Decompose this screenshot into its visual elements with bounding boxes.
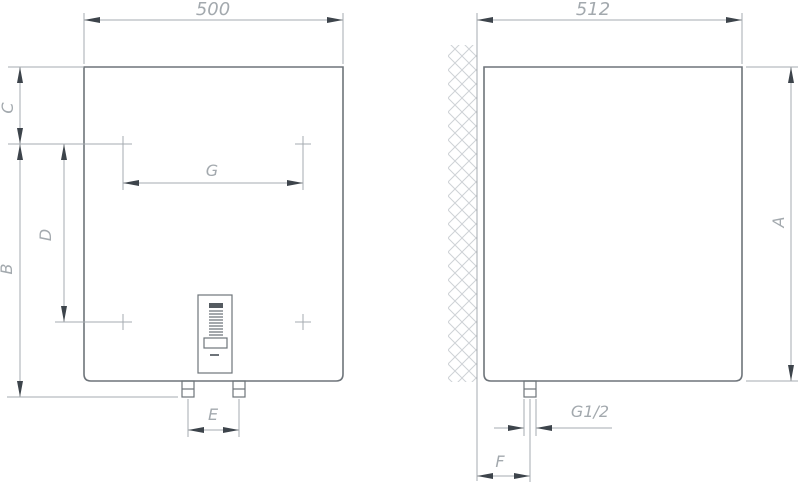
arrowhead (477, 17, 493, 23)
arrowhead (287, 180, 303, 186)
arrowhead (61, 144, 67, 160)
arrowhead (17, 381, 23, 397)
side-view: 512 A G1/2 F (448, 0, 798, 482)
front-width-label: 500 (196, 0, 230, 20)
dim-f-label: F (495, 452, 505, 471)
mounting-cross (115, 136, 131, 152)
dim-c-label: C (0, 102, 17, 114)
wall-hatch (448, 45, 477, 382)
mounting-cross (115, 314, 131, 330)
arrowhead (223, 427, 239, 433)
arrowhead (188, 427, 204, 433)
arrowhead (726, 17, 742, 23)
pipe-connection (524, 381, 536, 397)
arrowhead (788, 365, 794, 381)
arrowhead (17, 128, 23, 144)
control-knob (204, 338, 227, 348)
arrowhead (123, 180, 139, 186)
arrowhead (514, 473, 530, 479)
pipe-thread-label: G1/2 (571, 402, 609, 421)
arrowhead (84, 17, 100, 23)
dim-e-label: E (208, 405, 219, 424)
side-depth-label: 512 (576, 0, 610, 20)
arrowhead (17, 67, 23, 83)
temperature-scale-marks (209, 311, 223, 335)
dim-d-label: D (36, 229, 55, 241)
mounting-cross (295, 314, 311, 330)
mounting-cross (295, 136, 311, 152)
dim-b-label: B (0, 264, 16, 275)
front-view: 500 C B D (0, 0, 343, 437)
temperature-indicator (209, 303, 223, 308)
pipe-connection (182, 381, 194, 397)
arrowhead (508, 425, 524, 431)
front-tank-outline (84, 67, 343, 381)
arrowhead (477, 473, 493, 479)
arrowhead (327, 17, 343, 23)
control-panel (198, 295, 232, 373)
pipe-connection (233, 381, 245, 397)
dim-g-label: G (206, 161, 218, 180)
technical-drawing-water-heater: 500 C B D (0, 0, 800, 485)
arrowhead (17, 144, 23, 160)
arrowhead (536, 425, 552, 431)
arrowhead (61, 306, 67, 322)
drawing-svg: 500 C B D (0, 0, 800, 485)
dim-a-label: A (769, 217, 788, 229)
arrowhead (788, 67, 794, 83)
side-tank-outline (484, 67, 742, 381)
